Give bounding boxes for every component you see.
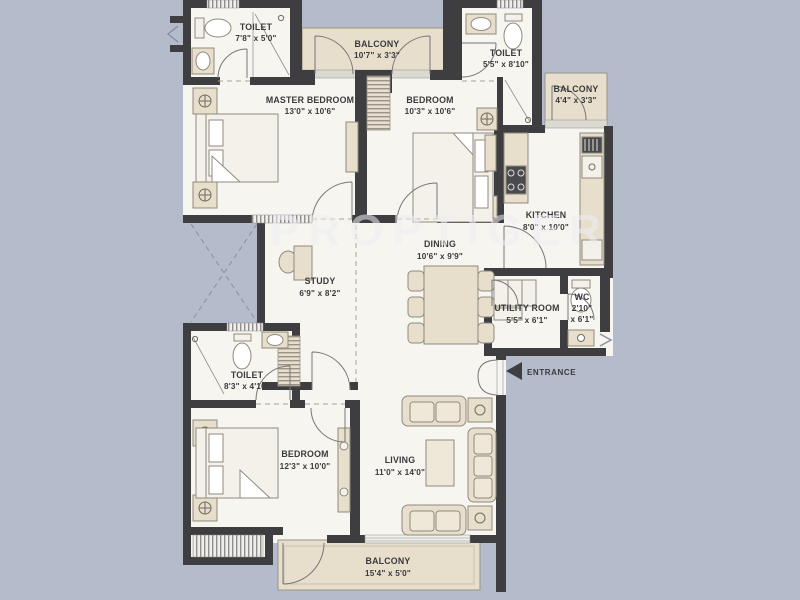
dims-toilet-tl: 7'8" x 5'0" <box>235 34 276 43</box>
pillow <box>209 120 223 146</box>
label-living: LIVING <box>385 455 416 465</box>
dims-balcony-top: 10'7" x 3'3" <box>354 51 400 60</box>
dresser <box>485 135 496 171</box>
floor-plan: TOILET 7'8" x 5'0" BALCONY 10'7" x 3'3" … <box>0 0 800 600</box>
chair <box>408 323 424 343</box>
dims-balcony-right: 4'4" x 3'3" <box>555 96 596 105</box>
dining-furniture <box>408 266 494 344</box>
chair <box>408 271 424 291</box>
label-balcony-top: BALCONY <box>355 39 400 49</box>
dims-master-bedroom: 13'0" x 10'6" <box>285 107 336 116</box>
toilet-bowl <box>504 23 522 49</box>
tv-unit <box>338 428 350 512</box>
pillow <box>475 176 488 208</box>
kitchen-sink <box>582 156 602 178</box>
label-master-bedroom: MASTER BEDROOM <box>266 95 354 105</box>
label-utility: UTILITY ROOM <box>494 303 559 313</box>
label-study: STUDY <box>305 276 336 286</box>
side-table <box>468 398 492 422</box>
coffee-table <box>426 440 454 486</box>
master-bed <box>196 114 278 182</box>
label-balcony-b: BALCONY <box>366 556 411 566</box>
dims-toilet-b: 8'3" x 4'10" <box>224 382 270 391</box>
bay-window-bedroom-b <box>193 535 263 557</box>
entrance-label: ENTRANCE <box>527 368 576 377</box>
label-bedroom-b: BEDROOM <box>281 449 328 459</box>
pillow <box>209 466 223 494</box>
toilet-bowl <box>205 19 231 37</box>
label-toilet-b: TOILET <box>231 370 264 380</box>
toilet-tank <box>195 18 204 38</box>
dims-bedroom-top: 10'3" x 10'6" <box>405 107 456 116</box>
label-balcony-right: BALCONY <box>554 84 599 94</box>
bed <box>196 428 278 498</box>
chair <box>478 323 494 343</box>
wc-tank <box>572 280 590 288</box>
toilet-bowl <box>233 343 251 369</box>
label-toilet-tr: TOILET <box>490 48 523 58</box>
floor-plan-drawing: TOILET 7'8" x 5'0" BALCONY 10'7" x 3'3" … <box>0 0 800 600</box>
window-toilet-tl <box>207 0 239 8</box>
dims-toilet-tr: 5'5" x 8'10" <box>483 60 529 69</box>
watermark: PROPTIGER <box>270 206 610 255</box>
chair <box>408 297 424 317</box>
window-toilet-b <box>227 323 263 331</box>
pillow <box>209 434 223 462</box>
dims-bedroom-b: 12'3" x 10'0" <box>280 462 331 471</box>
window-living <box>365 535 470 543</box>
label-wc: WC <box>574 292 590 302</box>
dims-wc-2: x 6'1" <box>571 315 594 324</box>
window-toilet-tr <box>497 0 523 8</box>
label-toilet-tl: TOILET <box>240 22 273 32</box>
dims-study: 6'9" x 8'2" <box>299 289 340 298</box>
label-bedroom-top: BEDROOM <box>406 95 453 105</box>
dresser-master <box>346 122 358 172</box>
wardrobe-bedroom-top <box>367 76 390 130</box>
dims-wc-1: 2'10" <box>572 304 593 313</box>
dims-utility: 5'5" x 6'1" <box>506 316 547 325</box>
side-table <box>468 506 492 530</box>
toilet-tank <box>234 334 251 341</box>
dining-table <box>424 266 478 344</box>
dims-living: 11'0" x 14'0" <box>375 468 425 477</box>
dims-balcony-b: 15'4" x 5'0" <box>365 569 411 578</box>
toilet-tank <box>505 14 522 21</box>
balcony-right-sill <box>545 120 607 128</box>
